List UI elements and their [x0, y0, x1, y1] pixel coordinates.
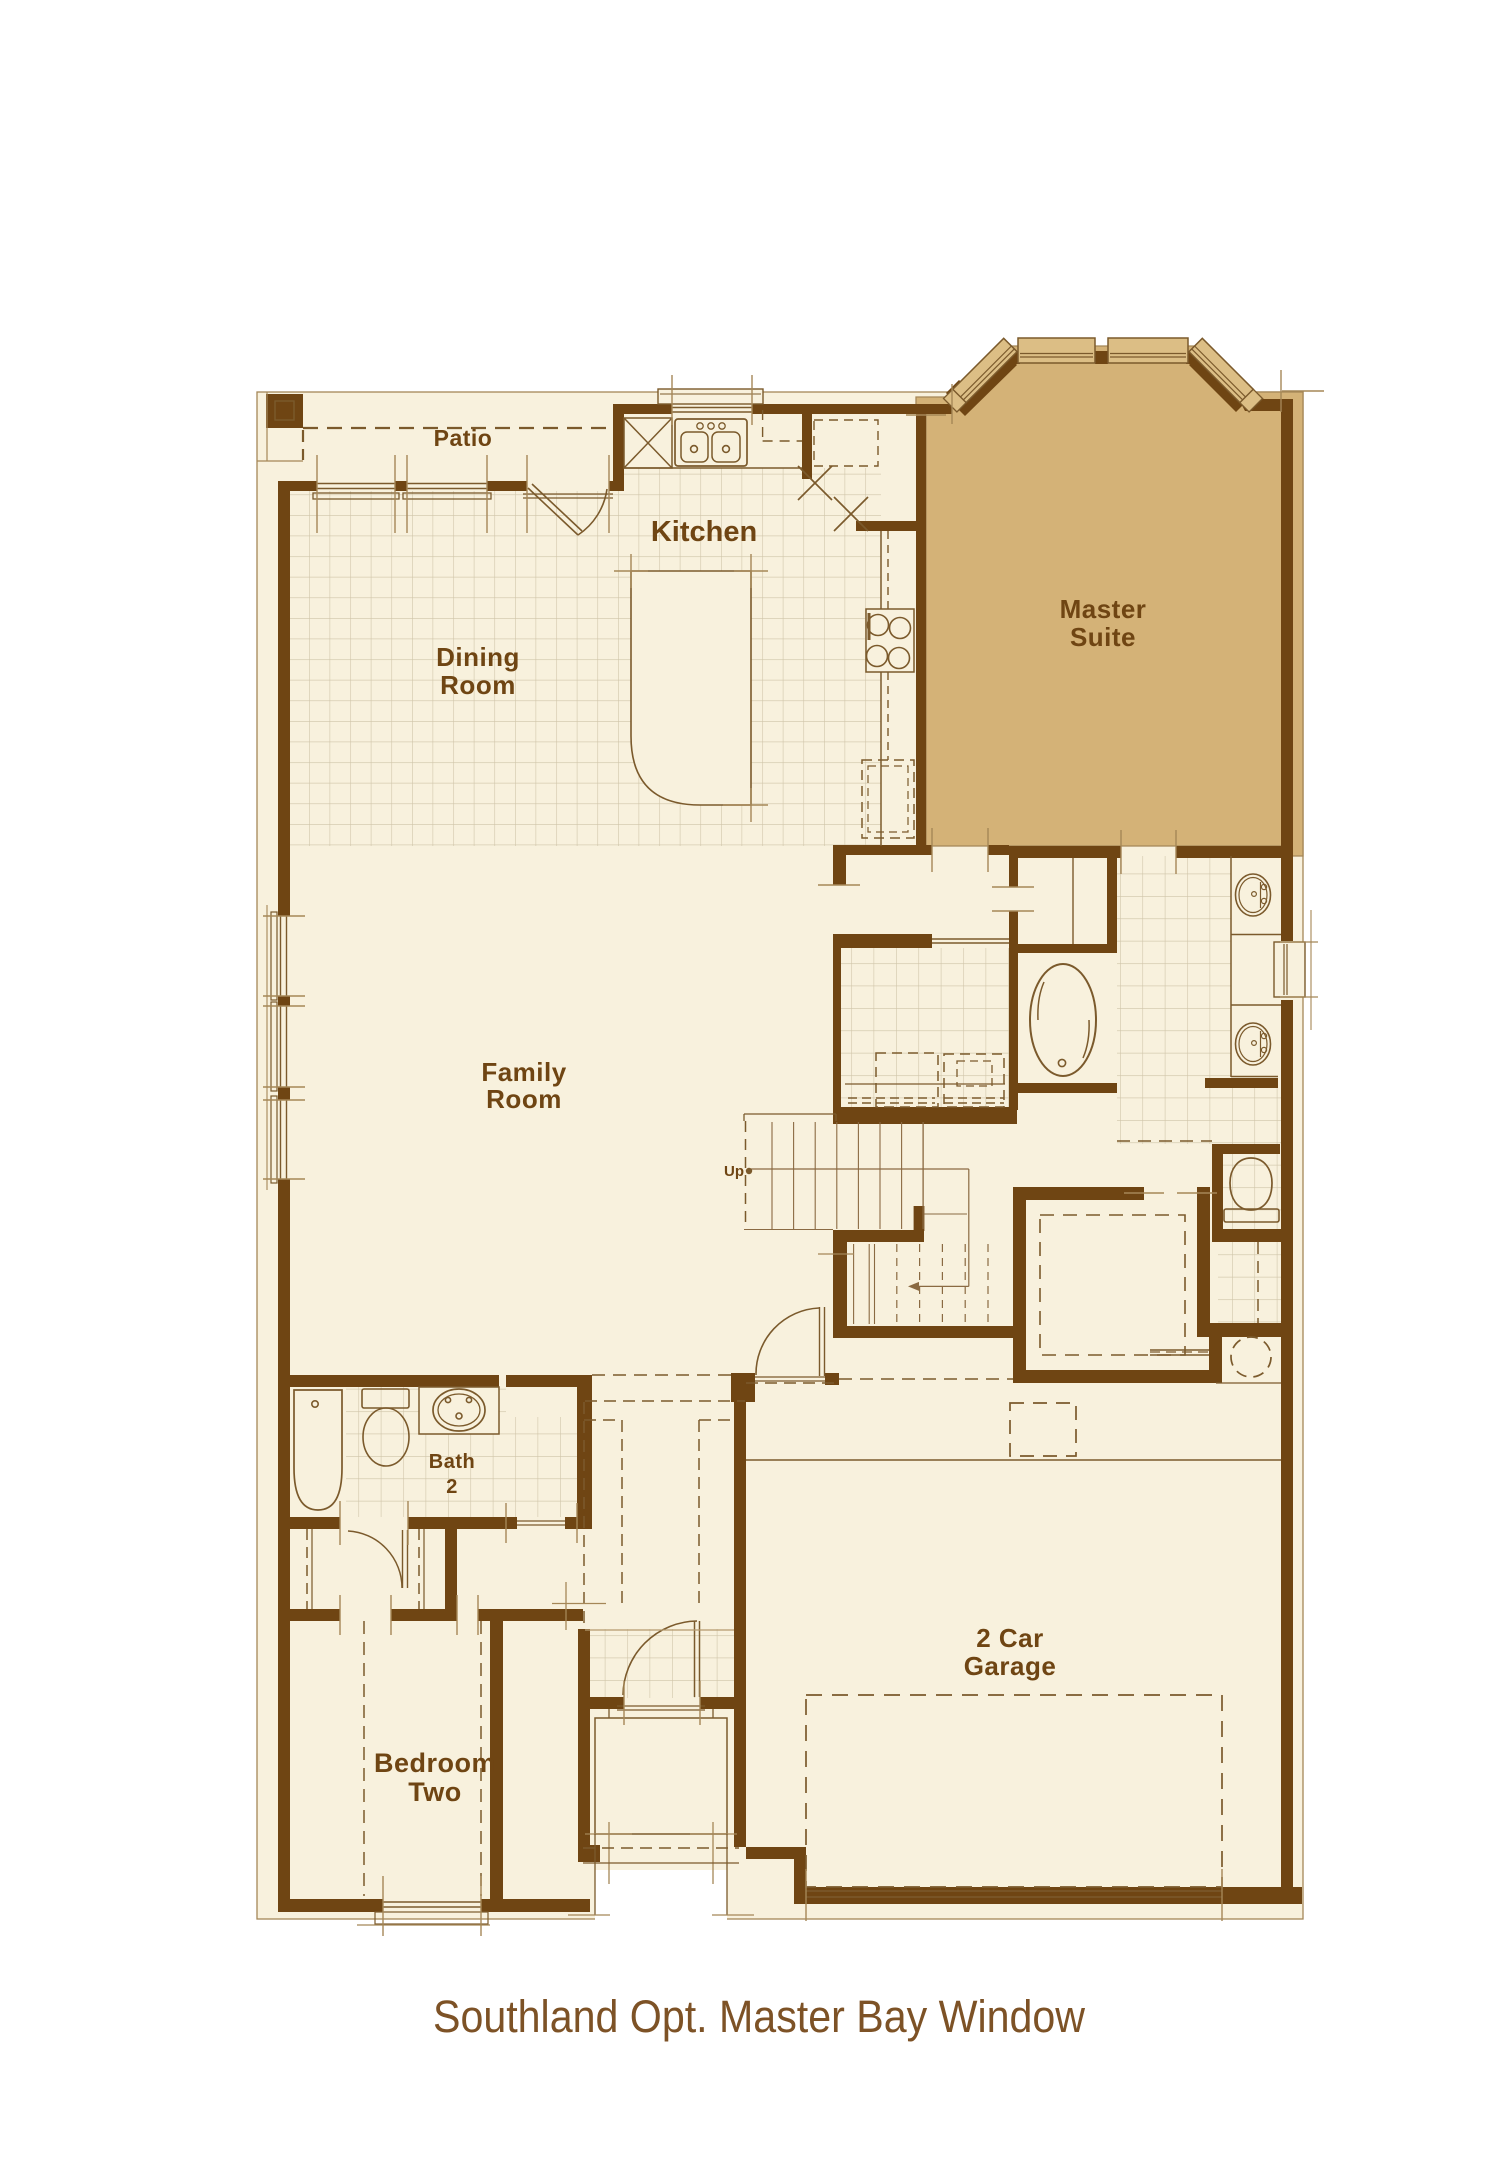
svg-text:Room: Room [486, 1084, 562, 1114]
svg-text:Two: Two [408, 1777, 461, 1807]
svg-text:Kitchen: Kitchen [651, 516, 757, 548]
svg-text:Up: Up [724, 1163, 744, 1180]
svg-text:2: 2 [446, 1476, 458, 1498]
svg-text:Bath: Bath [429, 1451, 475, 1473]
svg-text:Suite: Suite [1070, 622, 1136, 652]
svg-text:Family: Family [481, 1057, 566, 1087]
svg-text:Room: Room [440, 670, 516, 700]
svg-text:2 Car: 2 Car [976, 1623, 1044, 1653]
svg-text:Patio: Patio [434, 425, 493, 451]
svg-text:Garage: Garage [964, 1651, 1057, 1681]
svg-text:Dining: Dining [436, 642, 520, 672]
svg-text:Bedroom: Bedroom [374, 1748, 496, 1778]
svg-text:Southland Opt. Master Bay Wind: Southland Opt. Master Bay Window [433, 1991, 1085, 2042]
svg-text:Master: Master [1060, 594, 1147, 624]
